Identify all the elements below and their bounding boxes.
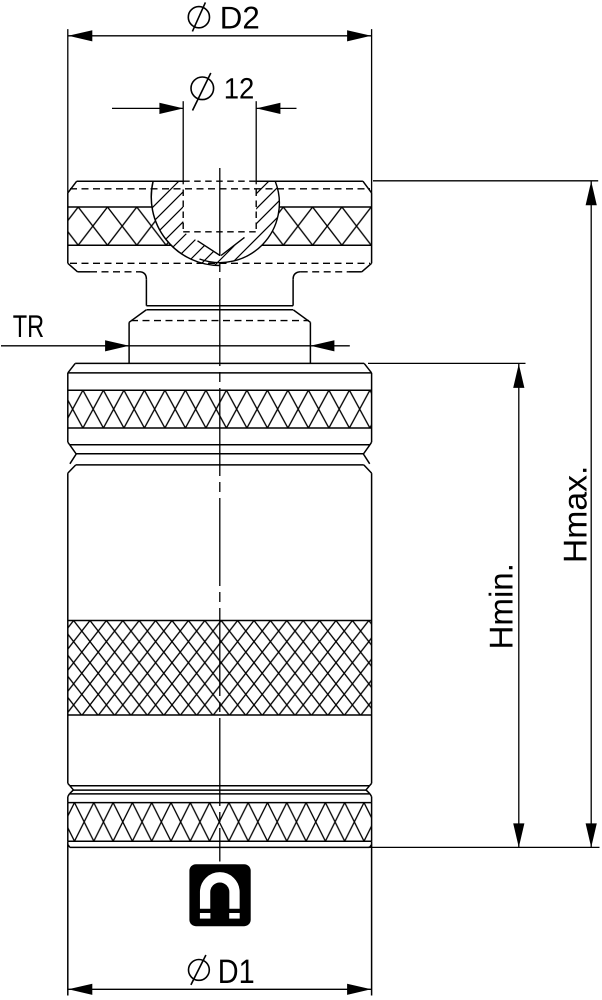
- svg-text:D1: D1: [218, 953, 255, 991]
- svg-text:D2: D2: [220, 0, 260, 35]
- svg-text:TR: TR: [13, 308, 44, 344]
- svg-text:12: 12: [224, 73, 255, 106]
- svg-text:Hmax.: Hmax.: [557, 466, 594, 564]
- svg-text:Hmin.: Hmin.: [483, 563, 520, 649]
